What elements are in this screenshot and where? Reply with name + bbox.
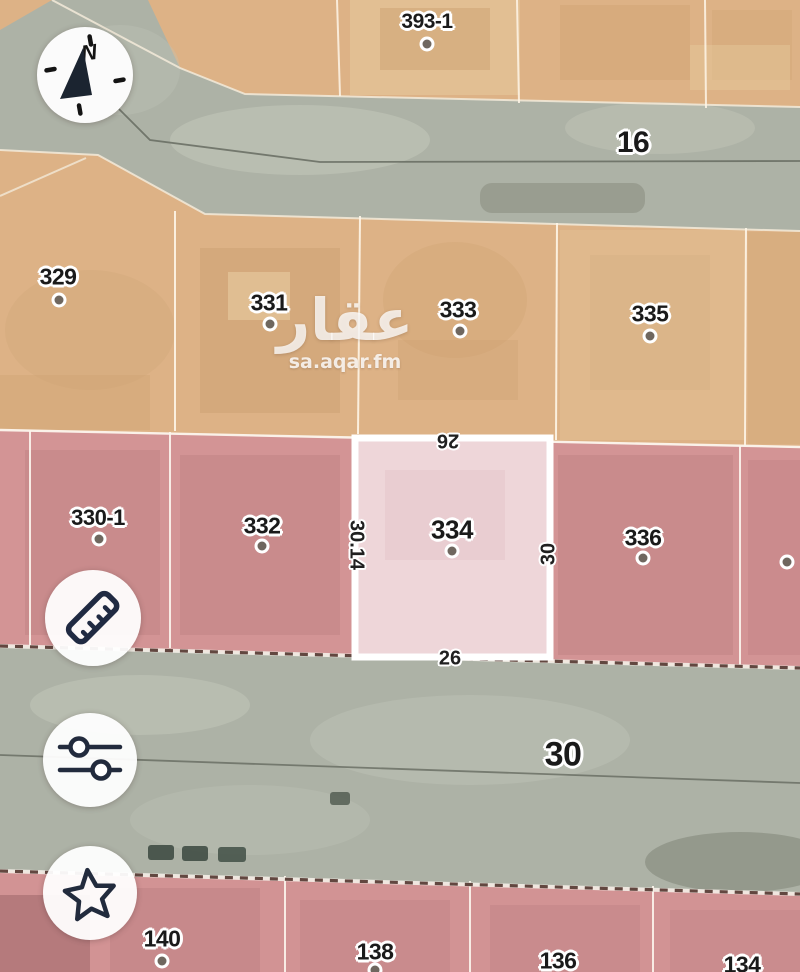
satellite-map-layer [0, 0, 800, 972]
parcel-marker-dot [456, 327, 465, 336]
parcel-label-333[interactable]: 333 [440, 297, 477, 324]
parcel-marker-dot [646, 332, 655, 341]
sliders-icon [43, 713, 137, 807]
parcel-label-336[interactable]: 336 [625, 525, 662, 552]
parcel-label-331[interactable]: 331 [251, 290, 288, 317]
parcel-label-330-1[interactable]: 330-1 [71, 505, 125, 531]
compass-icon: N [37, 27, 133, 123]
star-icon [43, 846, 137, 940]
street-label-30: 30 [545, 736, 582, 775]
parcel-marker-dot [266, 320, 275, 329]
parcel-marker-dot [55, 296, 64, 305]
street-label-16: 16 [617, 126, 649, 160]
parcel-marker-dot [639, 554, 648, 563]
parcel-marker-dot [783, 558, 792, 567]
parcel-label-136[interactable]: 136 [540, 948, 577, 972]
parcel-label-329[interactable]: 329 [40, 264, 77, 291]
measure-button[interactable] [45, 570, 141, 666]
favorites-button[interactable] [43, 846, 137, 940]
parcel-label-393-1[interactable]: 393-1 [401, 10, 452, 34]
dimension-right: 30 [538, 543, 561, 565]
dimension-left: 30.14 [345, 520, 368, 570]
dimension-bottom: 26 [439, 648, 461, 671]
parcel-marker-dot [158, 957, 167, 966]
compass-button[interactable]: N [37, 27, 133, 123]
filter-button[interactable] [43, 713, 137, 807]
parcel-label-134[interactable]: 134 [724, 952, 761, 972]
parcel-label-332[interactable]: 332 [244, 513, 281, 540]
dimension-top: 26 [437, 429, 459, 452]
parcel-label-335[interactable]: 335 [632, 301, 669, 328]
parcel-label-138[interactable]: 138 [357, 939, 394, 966]
parcel-label-334-selected[interactable]: 334 [431, 515, 473, 546]
parcel-label-140[interactable]: 140 [144, 926, 181, 953]
parcel-marker-dot-selected [448, 547, 457, 556]
parcel-marker-dot [371, 966, 380, 972]
parcel-marker-dot [95, 535, 104, 544]
map-canvas[interactable]: عقار sa.aqar.fm 16 30 393-1 329 331 333 … [0, 0, 800, 972]
parcel-marker-dot [258, 542, 267, 551]
ruler-icon [45, 570, 141, 666]
parcel-marker-dot [423, 40, 432, 49]
